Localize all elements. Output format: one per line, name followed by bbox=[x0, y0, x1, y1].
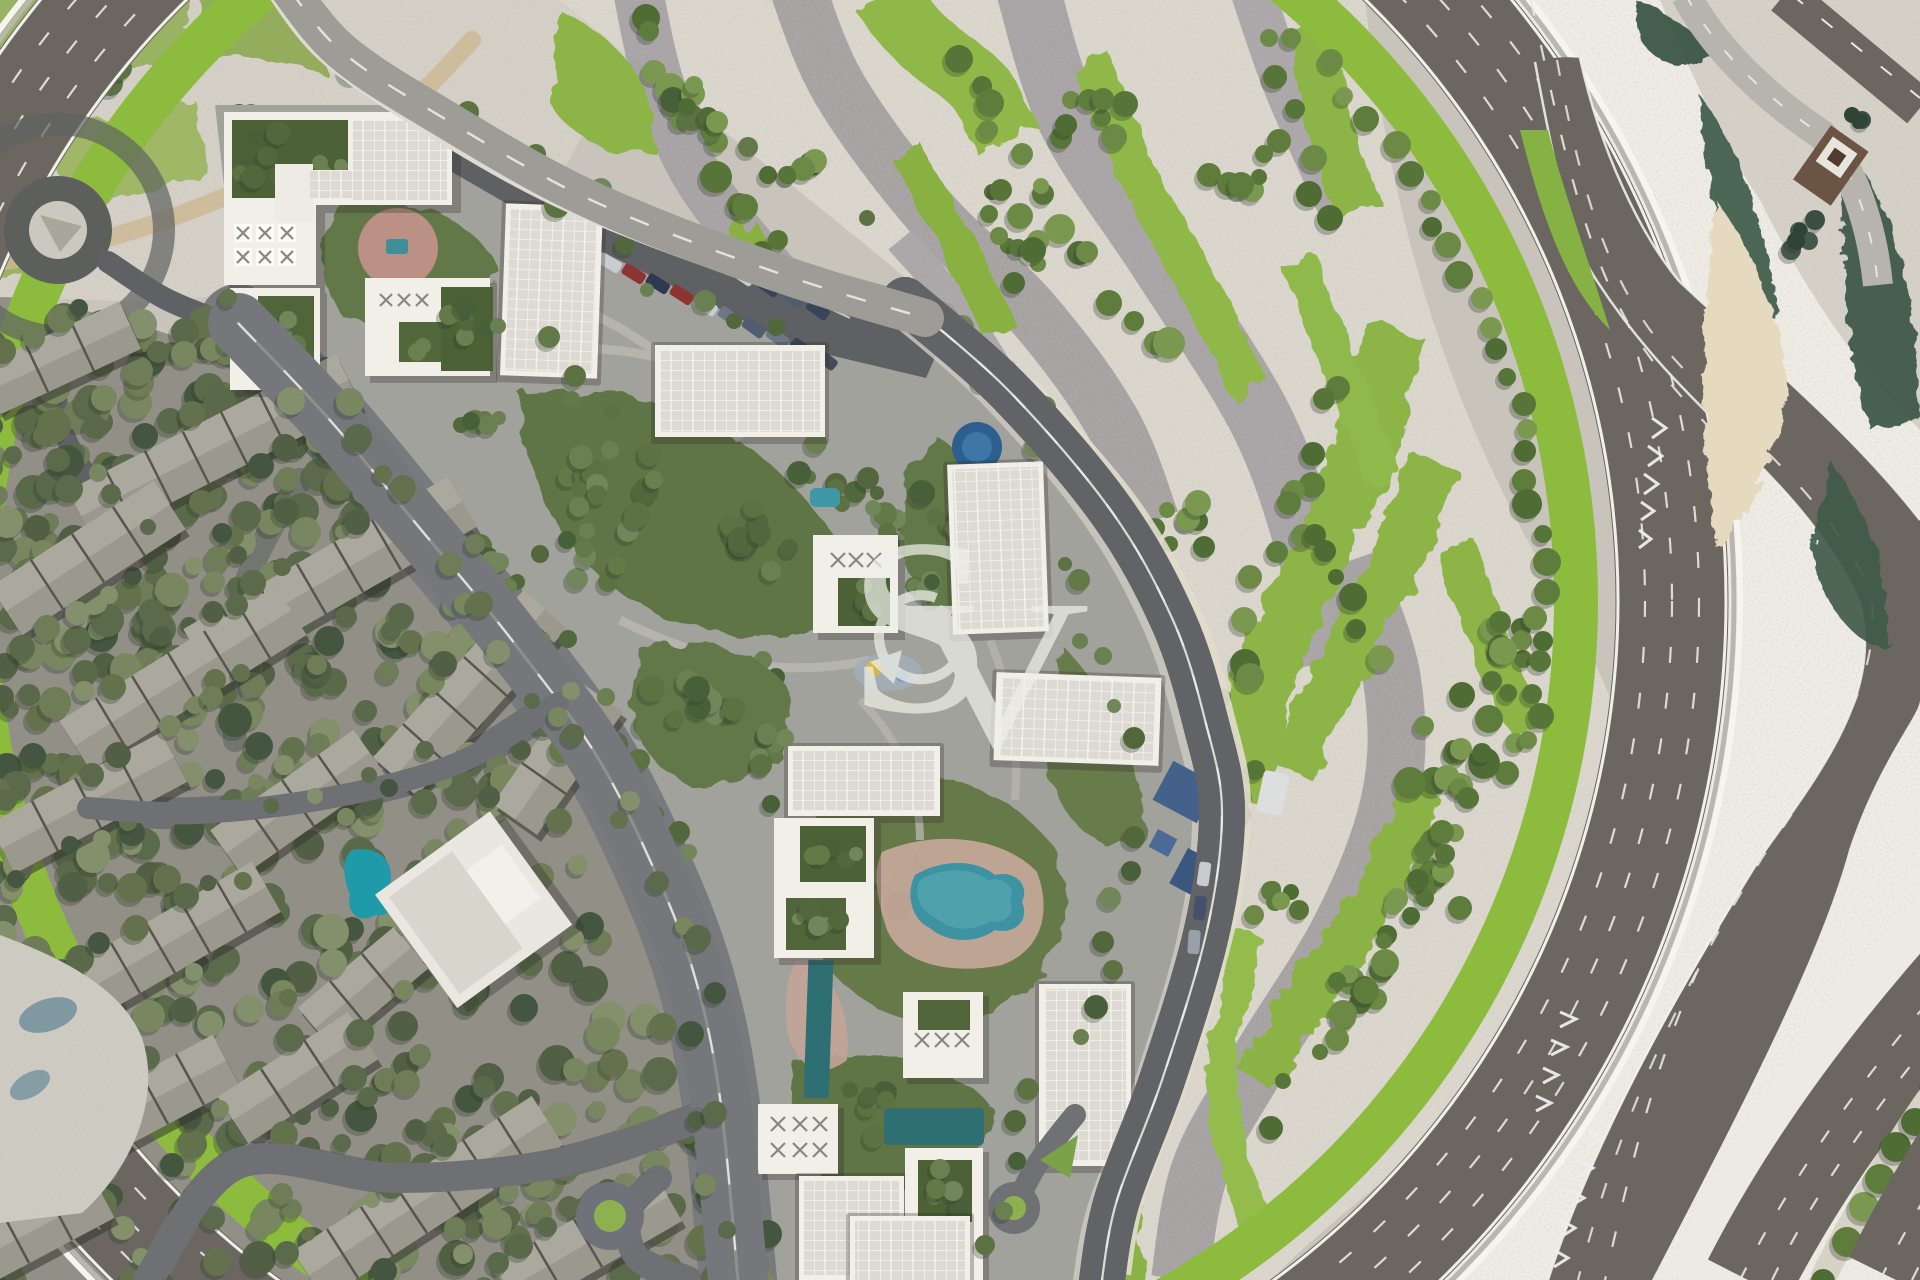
svg-text:V: V bbox=[902, 555, 1091, 793]
